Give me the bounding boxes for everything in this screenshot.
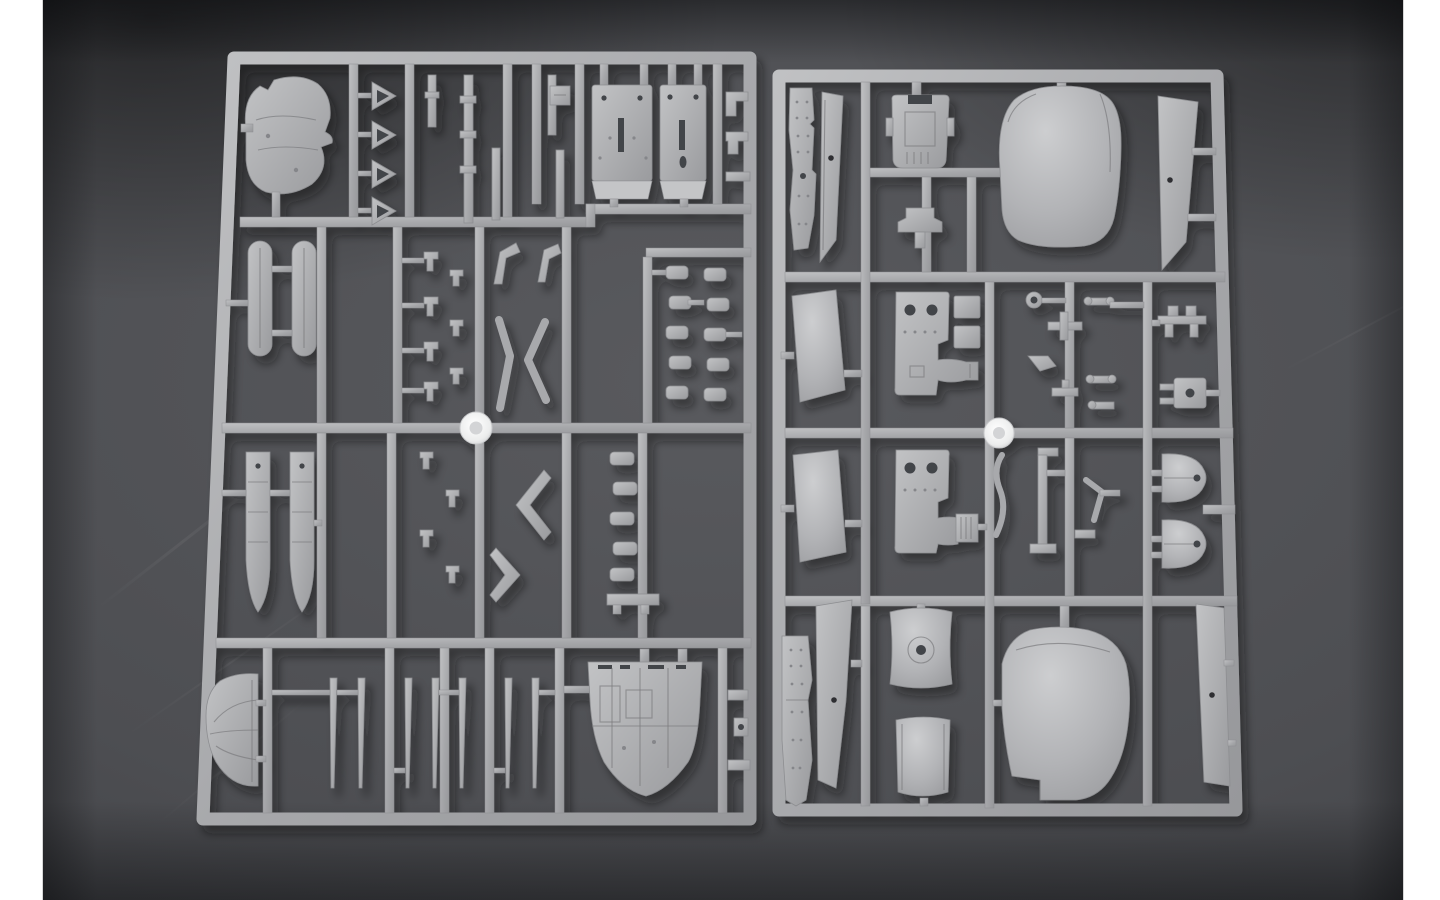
deck-plate-flap bbox=[660, 181, 706, 199]
gate-stub bbox=[241, 124, 253, 132]
plate-slot bbox=[618, 118, 624, 152]
runner bbox=[646, 248, 751, 257]
gate-stub bbox=[272, 330, 292, 336]
gate-stub bbox=[1151, 536, 1163, 542]
runner bbox=[475, 227, 484, 423]
cowl-section-part bbox=[993, 606, 1130, 800]
lever-part bbox=[450, 368, 463, 384]
gate-stub bbox=[613, 605, 621, 614]
fitting-parts bbox=[1152, 306, 1220, 408]
rod-part bbox=[460, 131, 476, 138]
gate-stub bbox=[402, 303, 424, 308]
runner bbox=[475, 433, 484, 638]
flat-bar-part bbox=[607, 594, 659, 605]
gate-stub bbox=[337, 690, 358, 695]
part-chain bbox=[607, 452, 659, 614]
runner bbox=[387, 433, 396, 638]
wing-panel-part bbox=[816, 600, 862, 788]
gate-stub bbox=[600, 64, 608, 86]
linkage-parts bbox=[402, 252, 463, 401]
runner bbox=[393, 227, 402, 423]
gate-stub bbox=[402, 348, 424, 353]
fuselage-strip-part bbox=[789, 88, 816, 250]
gate-stub bbox=[358, 132, 371, 137]
rod-part bbox=[492, 148, 500, 220]
lever-part bbox=[420, 452, 433, 469]
wing-skin-panel-part bbox=[781, 450, 862, 562]
runner bbox=[440, 648, 449, 813]
gate-stub bbox=[652, 270, 666, 275]
gate-stub bbox=[781, 352, 794, 359]
gate-stub bbox=[358, 208, 371, 213]
hull-section-part bbox=[564, 649, 702, 796]
lever-part bbox=[446, 566, 459, 583]
cockpit-deck-part bbox=[886, 95, 954, 168]
gate-stub bbox=[272, 266, 292, 272]
cowling-rivet bbox=[294, 168, 298, 172]
gate-stub bbox=[640, 649, 649, 663]
gate-stub bbox=[781, 505, 794, 512]
gate-stub bbox=[641, 605, 649, 614]
wing-skin-panel-part bbox=[781, 290, 862, 402]
runner bbox=[562, 433, 571, 638]
gate-stub bbox=[845, 520, 862, 527]
rod-part bbox=[460, 166, 476, 173]
runner bbox=[586, 204, 595, 227]
instrument-panel-part bbox=[895, 450, 987, 553]
gate-stub bbox=[610, 199, 618, 207]
gate-stub bbox=[668, 64, 676, 86]
control-yoke-part bbox=[898, 208, 942, 248]
gate-stub bbox=[726, 332, 742, 337]
plate-hole bbox=[693, 94, 698, 99]
runner bbox=[503, 64, 512, 217]
pontoon-parts bbox=[222, 452, 322, 612]
plate-hole bbox=[637, 95, 642, 100]
rod-part bbox=[556, 150, 564, 218]
ejector-pin-mark bbox=[831, 697, 837, 703]
gate-stub bbox=[1192, 148, 1216, 155]
gate-stub bbox=[678, 649, 687, 663]
lever-part bbox=[424, 382, 438, 401]
lever-part bbox=[424, 297, 438, 316]
runner bbox=[1203, 505, 1235, 514]
gate-stub bbox=[1151, 470, 1163, 476]
small-fitting-parts bbox=[1026, 292, 1144, 409]
linkage-parts bbox=[420, 452, 551, 602]
gate-stub bbox=[1224, 660, 1234, 666]
gate-stub bbox=[272, 192, 280, 217]
part-chain bbox=[652, 266, 742, 401]
gate-stub bbox=[564, 686, 590, 693]
runner bbox=[643, 257, 652, 423]
gate-stub bbox=[402, 258, 424, 263]
runner bbox=[1065, 438, 1074, 596]
lever-part bbox=[424, 252, 438, 271]
runner bbox=[263, 648, 272, 813]
gate-stub bbox=[920, 798, 928, 806]
gate-stub bbox=[1047, 470, 1065, 476]
gate-stub bbox=[688, 300, 704, 305]
saddle-panel-part bbox=[890, 604, 952, 688]
gate-stub bbox=[270, 490, 290, 496]
lever-part bbox=[450, 320, 463, 336]
runner bbox=[349, 64, 358, 217]
gate-stub bbox=[256, 700, 266, 706]
gate-stub bbox=[993, 700, 1003, 706]
cowling-rivet bbox=[266, 134, 270, 138]
gate-stub bbox=[1100, 490, 1120, 496]
gate-stub bbox=[394, 768, 405, 773]
sprue-right bbox=[779, 76, 1237, 810]
gate-stub bbox=[539, 690, 555, 695]
rod-part bbox=[460, 96, 476, 103]
runner bbox=[862, 168, 1014, 177]
gate-stub bbox=[851, 660, 862, 667]
rod-part bbox=[425, 92, 439, 98]
pontoon-half bbox=[246, 452, 270, 612]
runner bbox=[785, 272, 1225, 282]
runner bbox=[713, 64, 722, 204]
gate-stub bbox=[226, 300, 248, 306]
lever-part bbox=[450, 270, 463, 286]
gate-stub bbox=[1188, 214, 1216, 221]
lever-part bbox=[420, 530, 433, 547]
hatch-part bbox=[954, 296, 980, 318]
funnel-parts bbox=[358, 82, 396, 225]
gate-stub bbox=[494, 768, 505, 773]
curved-sheet-part bbox=[896, 717, 950, 806]
grille-fitting bbox=[956, 514, 978, 542]
gate-stub bbox=[256, 756, 266, 762]
runner bbox=[985, 282, 994, 808]
dome-part bbox=[206, 674, 266, 787]
runner bbox=[1065, 282, 1074, 428]
runner bbox=[575, 64, 584, 204]
cowl-spinner-part bbox=[1151, 520, 1206, 568]
runner bbox=[216, 638, 751, 648]
gear-leg-parts bbox=[996, 448, 1120, 553]
stabilizer-panel-part bbox=[1158, 96, 1216, 270]
blade-rod-parts bbox=[272, 678, 555, 788]
runner bbox=[562, 227, 571, 423]
small-rod-parts bbox=[425, 75, 570, 223]
gate-stub bbox=[272, 690, 330, 695]
gate-stub bbox=[358, 93, 371, 98]
engine-cowling-part bbox=[245, 77, 332, 194]
gate-stub bbox=[358, 171, 371, 176]
nose-cowl-part bbox=[999, 83, 1121, 247]
runner bbox=[317, 227, 326, 423]
gate-stub bbox=[844, 370, 862, 377]
runner bbox=[532, 64, 541, 204]
runner bbox=[317, 433, 326, 638]
strut-part bbox=[528, 322, 546, 400]
runner bbox=[861, 82, 870, 604]
runner bbox=[485, 648, 494, 813]
fuselage-plate-parts bbox=[592, 64, 706, 207]
runner bbox=[405, 64, 414, 217]
white-marker-tag bbox=[460, 412, 492, 444]
gate-stub bbox=[978, 524, 987, 530]
runner bbox=[555, 648, 564, 813]
plate-hole bbox=[667, 94, 672, 99]
gate-stub bbox=[222, 490, 246, 496]
rod-part bbox=[428, 75, 436, 127]
sprue-left bbox=[203, 58, 751, 819]
runner bbox=[385, 648, 394, 813]
fuselage-strip-part bbox=[782, 636, 812, 806]
white-marker-tag bbox=[984, 418, 1014, 448]
plate-hole bbox=[601, 95, 606, 100]
arrow-strut-part bbox=[516, 470, 551, 540]
gate-stub bbox=[439, 690, 459, 695]
gate-stub bbox=[680, 199, 688, 207]
cowl-spinner-part bbox=[1151, 454, 1206, 502]
photo-stage bbox=[0, 0, 1440, 900]
sprues-illustration bbox=[0, 0, 1440, 900]
runner bbox=[785, 596, 1237, 606]
runner bbox=[718, 648, 727, 813]
strut-parts bbox=[494, 243, 561, 408]
strut-part bbox=[494, 243, 520, 284]
runner bbox=[1143, 282, 1152, 806]
ejector-pin-mark bbox=[1209, 692, 1215, 698]
gate-stub bbox=[1151, 552, 1163, 558]
ejector-pin-mark bbox=[828, 155, 834, 161]
gate-stub bbox=[1228, 740, 1236, 746]
strut-part bbox=[499, 320, 510, 408]
runner bbox=[240, 217, 590, 227]
gate-stub bbox=[694, 64, 702, 86]
plate-hole bbox=[680, 156, 687, 168]
arrow-strut-part bbox=[490, 548, 520, 602]
ejector-pin-mark bbox=[1167, 177, 1173, 183]
bracket-part bbox=[726, 172, 750, 181]
pontoon-half bbox=[290, 452, 314, 612]
lever-part bbox=[424, 342, 438, 361]
gate-stub bbox=[1042, 298, 1066, 303]
plate-slot bbox=[679, 120, 685, 150]
gate-stub bbox=[402, 388, 424, 393]
deck-plate-flap bbox=[592, 181, 652, 199]
gate-stub bbox=[640, 64, 648, 86]
wing-fairing-part bbox=[820, 92, 843, 262]
strut-part bbox=[538, 244, 561, 282]
hatch-part bbox=[954, 326, 980, 348]
runner bbox=[861, 606, 870, 806]
gate-stub bbox=[1151, 486, 1163, 492]
gate-stub bbox=[314, 520, 322, 526]
gate-stub bbox=[1152, 320, 1160, 326]
runner bbox=[967, 177, 976, 272]
gate-stub bbox=[1110, 302, 1144, 308]
gate-stub bbox=[1060, 606, 1069, 628]
lever-part bbox=[446, 490, 459, 507]
gate-stub bbox=[1206, 390, 1220, 396]
